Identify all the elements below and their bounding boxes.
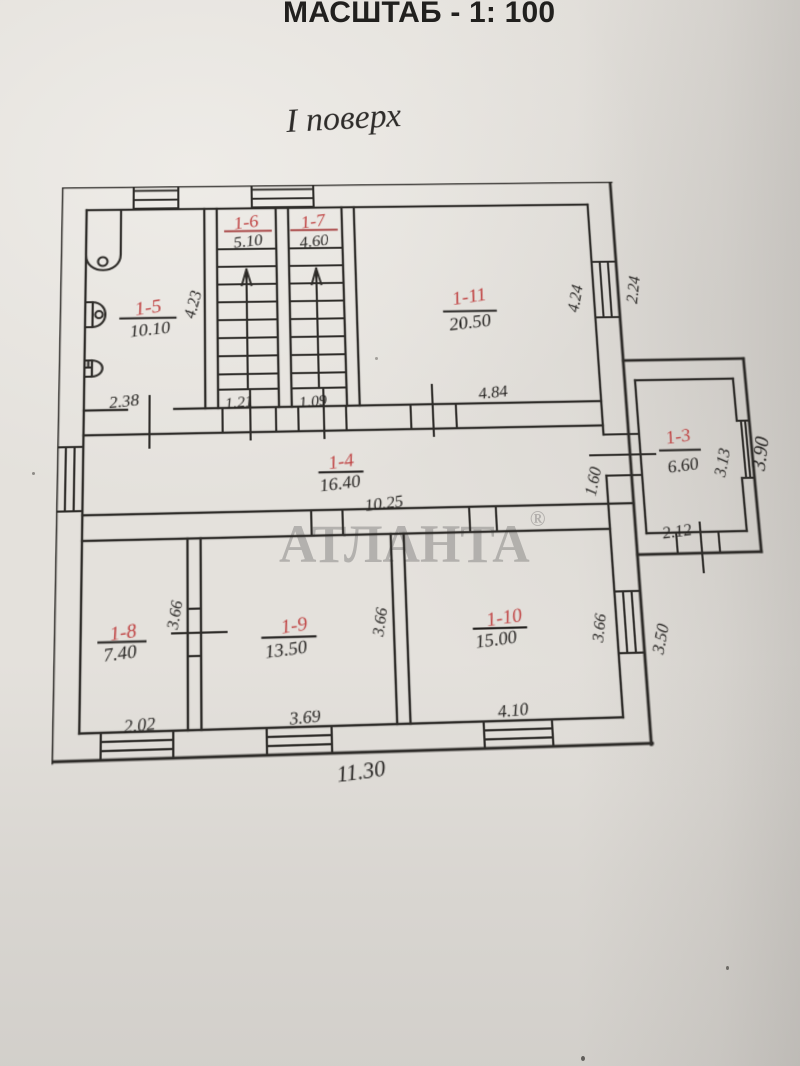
svg-text:1-11: 1-11: [450, 284, 488, 310]
svg-text:2.24: 2.24: [624, 275, 644, 305]
svg-text:3.66: 3.66: [590, 612, 611, 645]
svg-text:3.50: 3.50: [649, 622, 673, 657]
svg-text:1-5: 1-5: [133, 296, 163, 321]
svg-text:3.66: 3.66: [370, 606, 392, 639]
svg-text:7.40: 7.40: [102, 640, 138, 666]
svg-text:3.66: 3.66: [164, 599, 187, 632]
svg-text:3.90: 3.90: [748, 434, 774, 473]
svg-text:1-7: 1-7: [299, 210, 328, 233]
svg-text:5.10: 5.10: [233, 232, 264, 252]
svg-text:2.02: 2.02: [123, 715, 156, 738]
svg-text:16.40: 16.40: [318, 471, 362, 496]
svg-text:4.60: 4.60: [299, 232, 330, 252]
svg-text:4.23: 4.23: [181, 289, 206, 320]
svg-text:1-4: 1-4: [327, 449, 356, 473]
svg-text:6.60: 6.60: [666, 453, 701, 477]
svg-text:10.10: 10.10: [129, 317, 172, 341]
svg-text:2.38: 2.38: [108, 392, 140, 413]
svg-text:1-6: 1-6: [232, 211, 260, 233]
svg-text:1.60: 1.60: [582, 465, 606, 497]
svg-text:3.13: 3.13: [711, 446, 734, 479]
svg-text:10.25: 10.25: [364, 493, 405, 516]
svg-text:4.10: 4.10: [497, 700, 530, 722]
svg-text:4.84: 4.84: [477, 383, 509, 403]
svg-text:20.50: 20.50: [448, 310, 493, 335]
svg-text:3.69: 3.69: [288, 707, 322, 730]
svg-text:1.21: 1.21: [224, 393, 254, 412]
svg-text:1-3: 1-3: [664, 424, 693, 448]
svg-text:13.50: 13.50: [264, 636, 309, 663]
svg-text:4.24: 4.24: [565, 283, 587, 313]
svg-text:11.30: 11.30: [335, 756, 387, 788]
svg-text:1-9: 1-9: [279, 612, 308, 638]
svg-text:1.09: 1.09: [298, 392, 328, 411]
svg-text:2.12: 2.12: [661, 521, 694, 543]
svg-text:15.00: 15.00: [474, 626, 519, 652]
